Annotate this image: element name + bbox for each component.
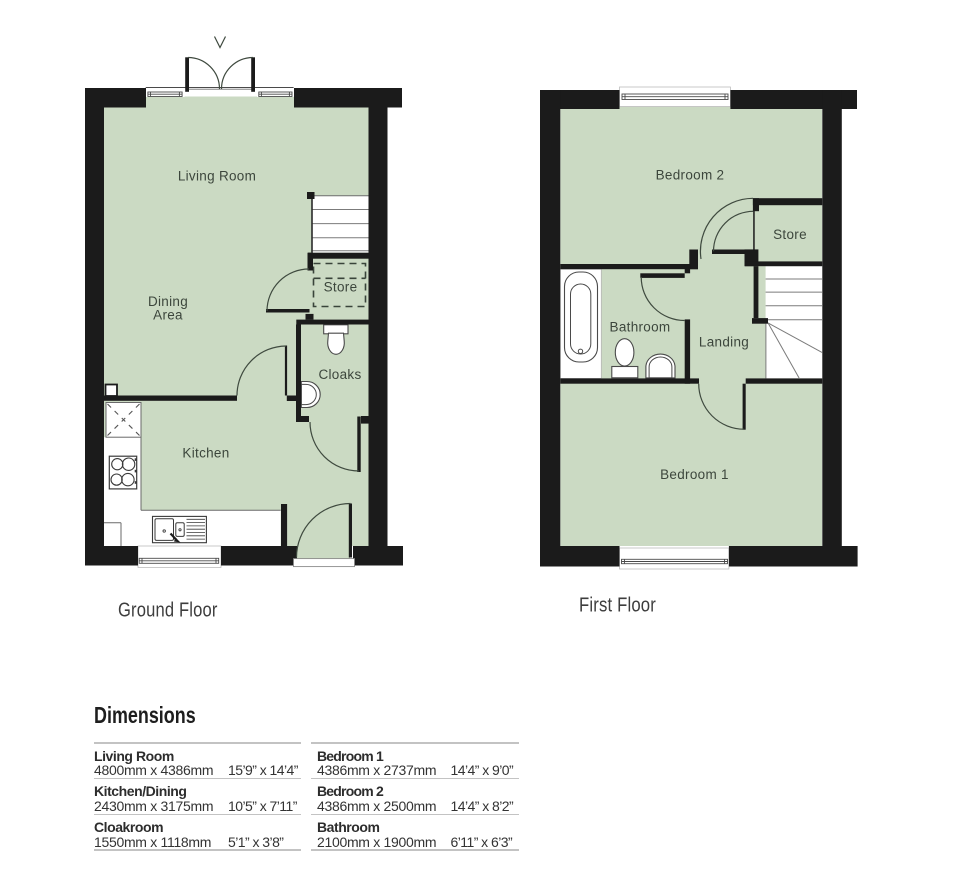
- svg-text:Bedroom 2: Bedroom 2: [656, 168, 725, 183]
- svg-text:Kitchen: Kitchen: [182, 446, 229, 461]
- svg-text:Landing: Landing: [699, 335, 749, 350]
- svg-text:Area: Area: [153, 308, 183, 323]
- svg-text:Living Room: Living Room: [178, 169, 256, 184]
- svg-text:Bathroom: Bathroom: [610, 320, 671, 335]
- svg-text:Cloaks: Cloaks: [318, 367, 361, 382]
- svg-text:Bedroom 1: Bedroom 1: [660, 467, 729, 482]
- svg-text:Store: Store: [773, 227, 807, 242]
- svg-text:Ground Floor: Ground Floor: [118, 600, 218, 622]
- svg-text:Store: Store: [324, 280, 358, 295]
- svg-text:First Floor: First Floor: [579, 595, 656, 617]
